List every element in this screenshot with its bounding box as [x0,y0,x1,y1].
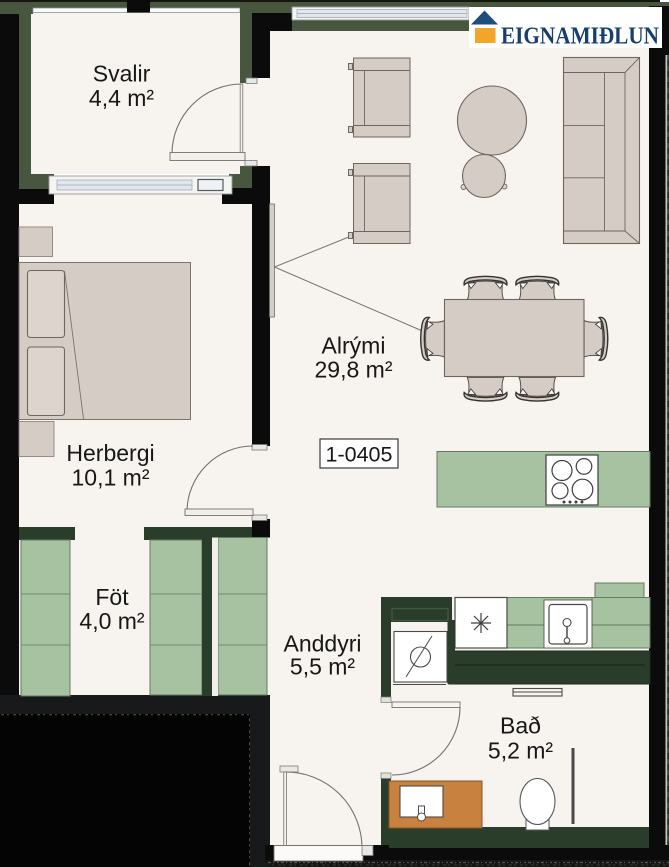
svg-text:4,4 m²: 4,4 m² [89,85,155,111]
svg-text:Svalir: Svalir [93,61,151,87]
svg-text:Herbergi: Herbergi [66,440,154,466]
svg-text:EIGNAMIÐLUN: EIGNAMIÐLUN [501,24,660,50]
svg-text:Anddyri: Anddyri [284,630,362,656]
svg-text:Alrými: Alrými [322,333,386,359]
svg-text:29,8 m²: 29,8 m² [315,357,393,383]
svg-text:5,5 m²: 5,5 m² [290,654,356,680]
svg-text:1-0405: 1-0405 [326,443,393,467]
svg-text:5,2 m²: 5,2 m² [488,738,554,764]
svg-text:Bað: Bað [500,713,541,739]
svg-text:10,1 m²: 10,1 m² [72,465,150,491]
svg-text:Föt: Föt [95,584,129,610]
svg-text:4,0 m²: 4,0 m² [79,608,145,634]
